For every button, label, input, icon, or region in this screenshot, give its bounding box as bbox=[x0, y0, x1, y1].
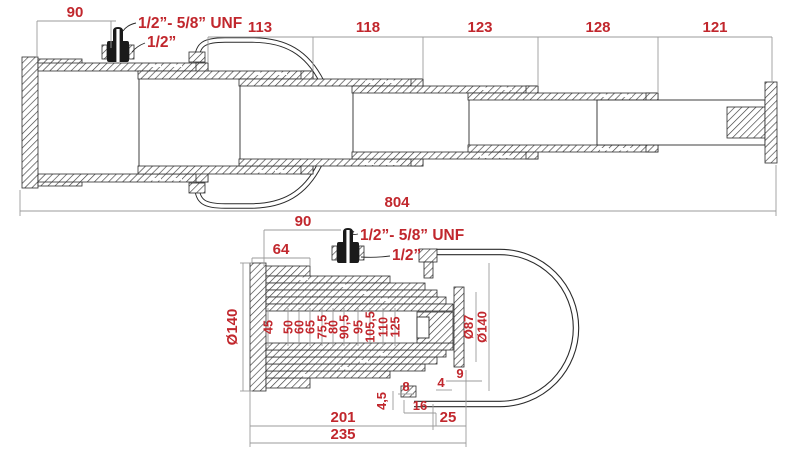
dim-8: 8 bbox=[402, 379, 409, 394]
hose-elbow-top bbox=[189, 52, 205, 62]
technical-drawing-page: 90 113 118 123 128 121 804 1/2”- 5/8” UN… bbox=[0, 0, 800, 450]
dim-121: 121 bbox=[702, 19, 727, 36]
bore-dimensions: 45 50 60 65 75,5 80 90,5 95 105,5 110 12… bbox=[262, 308, 403, 346]
port-thread-label-retracted: 1/2”- 5/8” UNF bbox=[360, 227, 464, 244]
dim-4-5: 4,5 bbox=[374, 392, 389, 410]
dim-113: 113 bbox=[248, 19, 272, 36]
dim-90-retracted: 90 bbox=[295, 213, 312, 230]
bore-dim-45: 45 bbox=[262, 320, 276, 334]
hydraulic-hoses-extended bbox=[189, 40, 322, 206]
bore-dim-90-5: 90,5 bbox=[338, 315, 352, 339]
extended-view: 90 113 118 123 128 121 804 1/2”- 5/8” UN… bbox=[20, 4, 777, 216]
port-size-label-extended: 1/2” bbox=[147, 34, 176, 51]
retracted-view: 45 50 60 65 75,5 80 90,5 95 105,5 110 12… bbox=[224, 213, 576, 447]
dia-flange-label: Ø140 bbox=[475, 311, 490, 343]
bore-dim-125: 125 bbox=[389, 317, 403, 338]
dia-left-label: Ø140 bbox=[224, 309, 241, 346]
inlet-valve-extended bbox=[102, 27, 134, 62]
cylinder-body-extended bbox=[22, 57, 777, 188]
dim-128: 128 bbox=[585, 19, 610, 36]
rod-end-flange bbox=[765, 82, 777, 163]
dim-201: 201 bbox=[330, 409, 355, 426]
port-size-label-retracted: 1/2” bbox=[392, 247, 421, 264]
hose-elbow-top-retracted bbox=[419, 249, 437, 262]
dim-123: 123 bbox=[467, 19, 492, 36]
rod-end-block bbox=[727, 107, 765, 138]
dim-118: 118 bbox=[356, 19, 380, 36]
bore-dim-105-5: 105,5 bbox=[364, 311, 378, 342]
dim-235: 235 bbox=[330, 426, 355, 443]
dim-804-overall: 804 bbox=[384, 194, 410, 211]
dim-16: 16 bbox=[413, 398, 427, 413]
dim-9: 9 bbox=[456, 366, 463, 381]
dim-64: 64 bbox=[273, 241, 290, 258]
dim-25: 25 bbox=[440, 409, 457, 426]
port-thread-label-extended: 1/2”- 5/8” UNF bbox=[138, 15, 242, 32]
dim-4: 4 bbox=[437, 375, 445, 390]
end-cap bbox=[22, 57, 38, 188]
hose-elbow-bottom bbox=[189, 183, 205, 193]
telescopic-cylinder-drawing: 90 113 118 123 128 121 804 1/2”- 5/8” UN… bbox=[0, 0, 800, 450]
dim-90-extended: 90 bbox=[67, 4, 84, 21]
